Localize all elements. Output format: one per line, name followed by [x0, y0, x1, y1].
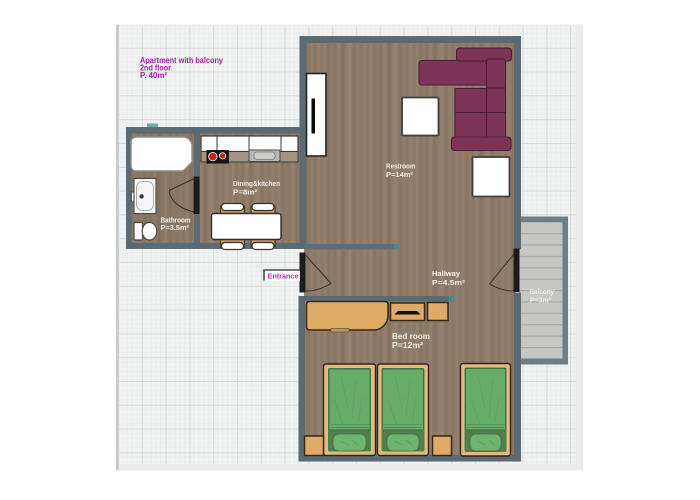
svg-text:Balcony: Balcony — [530, 289, 555, 296]
svg-text:P=8m²: P=8m² — [233, 188, 258, 197]
svg-text:P=3m²: P=3m² — [530, 298, 552, 305]
svg-text:P=3.5m²: P=3.5m² — [161, 223, 190, 232]
svg-text:P=12m²: P=12m² — [392, 340, 423, 350]
svg-text:P. 40m²: P. 40m² — [140, 71, 167, 80]
svg-text:Hallway: Hallway — [432, 269, 461, 278]
svg-text:P=4.5m²: P=4.5m² — [432, 278, 466, 287]
svg-text:Entrance: Entrance — [268, 272, 299, 281]
svg-text:P=14m²: P=14m² — [386, 170, 413, 179]
